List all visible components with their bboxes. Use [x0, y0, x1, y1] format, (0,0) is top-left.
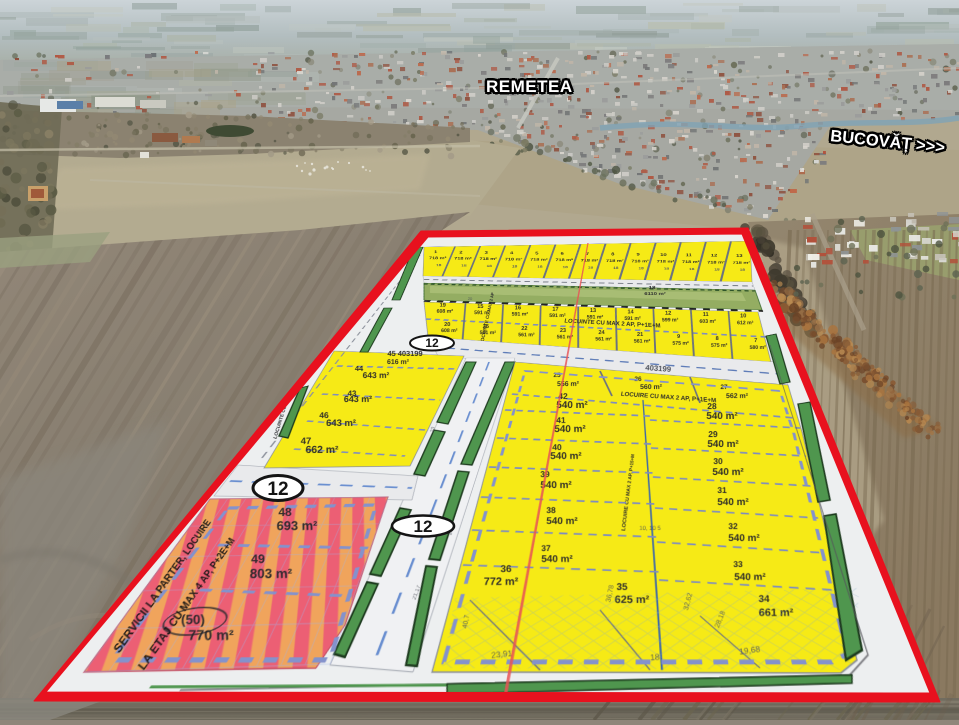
svg-text:12: 12	[425, 336, 439, 350]
svg-text:12: 12	[267, 479, 288, 500]
svg-text:12: 12	[414, 517, 433, 536]
